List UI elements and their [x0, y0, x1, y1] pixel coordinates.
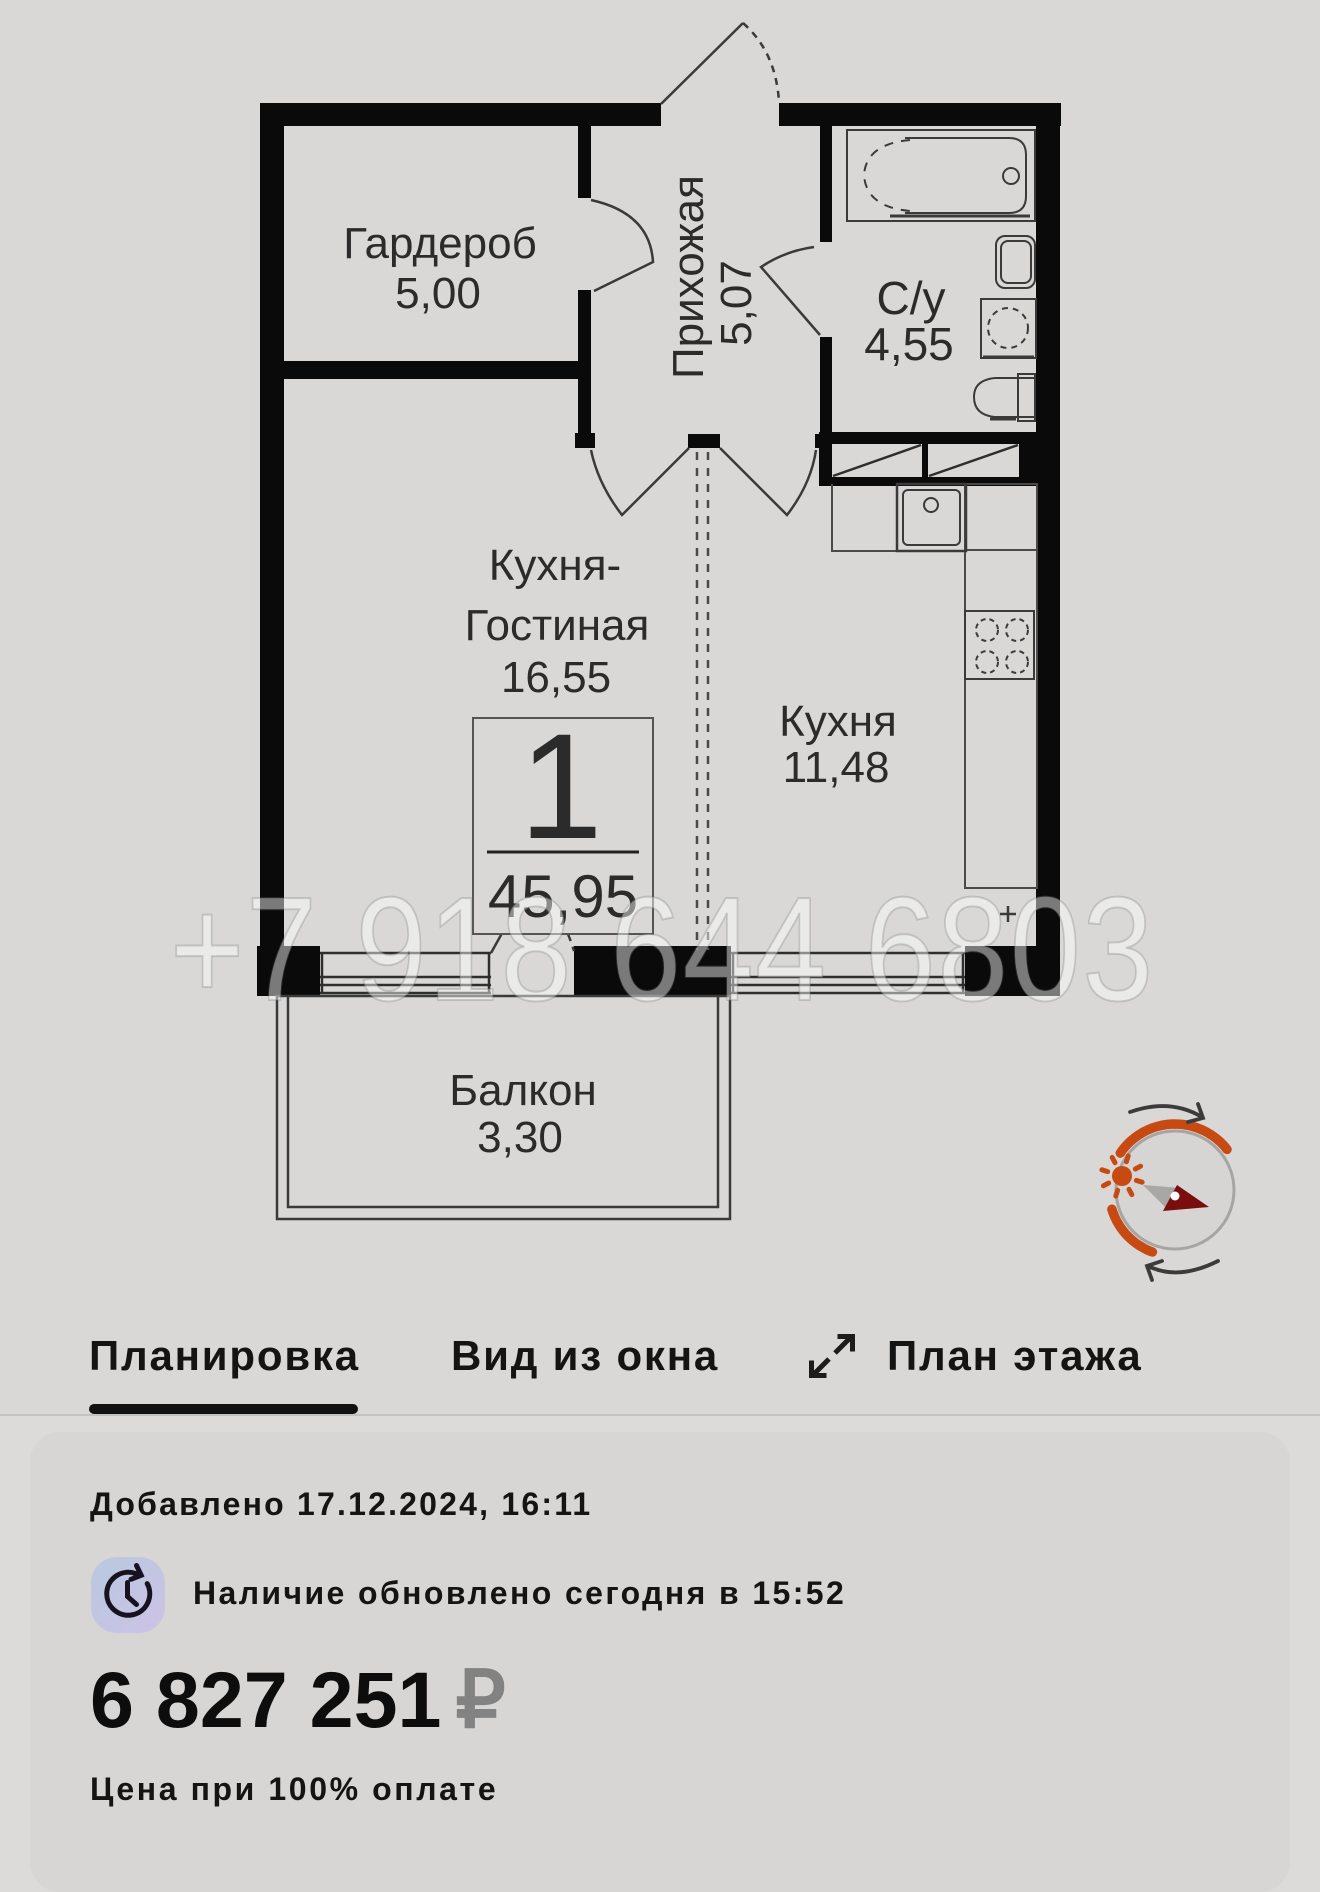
svg-text:11,48: 11,48 — [783, 743, 890, 792]
svg-text:С/у: С/у — [877, 272, 946, 324]
svg-text:5,00: 5,00 — [395, 269, 481, 318]
svg-text:Кухня-: Кухня- — [489, 541, 621, 590]
svg-text:16,55: 16,55 — [501, 653, 611, 702]
svg-text:Гостиная: Гостиная — [465, 601, 650, 650]
svg-text:1: 1 — [519, 702, 602, 870]
svg-text:Кухня: Кухня — [779, 697, 897, 746]
svg-text:Прихожая: Прихожая — [664, 175, 713, 379]
svg-text:4,55: 4,55 — [864, 318, 954, 370]
svg-text:Балкон: Балкон — [449, 1066, 597, 1115]
svg-text:5,07: 5,07 — [712, 260, 761, 346]
svg-text:Гардероб: Гардероб — [343, 219, 537, 268]
svg-text:3,30: 3,30 — [477, 1113, 563, 1162]
